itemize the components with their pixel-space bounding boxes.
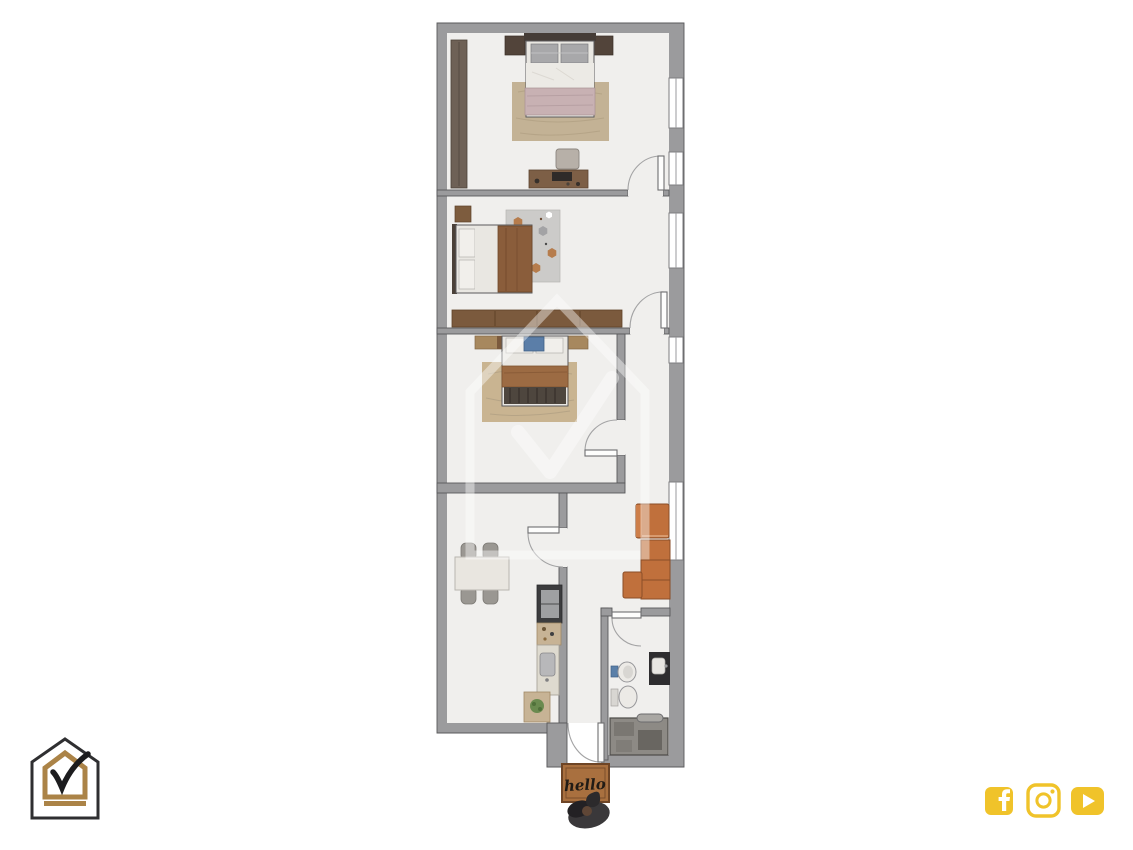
desk-chair [556,149,579,169]
desk [529,170,588,188]
double-bed [452,224,532,294]
shower [610,714,668,755]
dining-table [455,557,509,590]
blanket [525,88,595,115]
blanket [502,366,568,387]
instagram-icon[interactable] [1028,785,1059,816]
shower-door-handle [637,714,663,722]
blanket [498,226,532,292]
wall-vestibule [547,723,567,767]
ottoman [623,572,642,598]
window [669,152,683,185]
toilet [611,686,637,708]
floor-plan: hello [437,23,684,832]
entrance-opening [567,723,601,767]
youtube-icon[interactable] [1071,787,1104,815]
page-canvas: hello [0,0,1133,850]
wall-bed3-corridor-lower [617,455,625,483]
wall-bed1-bed2-stub [663,190,669,196]
nightstand [455,206,471,222]
wall-kitchen-living-upper [559,493,567,528]
window [669,482,683,560]
nightstand-left [505,36,525,55]
wall-bathroom-top-right [641,608,670,616]
logo-bar [44,801,86,806]
house-check-logo [32,739,98,818]
fridge [537,585,562,623]
bag [524,337,544,351]
facebook-icon[interactable] [985,787,1013,815]
doormat: hello [562,764,609,802]
plant [530,699,544,713]
social-bar [985,785,1104,816]
window [669,78,683,128]
window [669,213,683,268]
vanity-sink [649,652,670,685]
doormat-text: hello [563,775,606,795]
window [669,337,683,363]
wall-bed1-bed2 [437,190,628,196]
wall-bathroom-top-left [601,608,612,616]
sink [540,653,555,676]
wall-bed3-living [437,483,625,493]
double-bed [524,33,596,117]
wall-bed2-bed3-stub [664,328,669,334]
corner-counter [524,692,550,722]
